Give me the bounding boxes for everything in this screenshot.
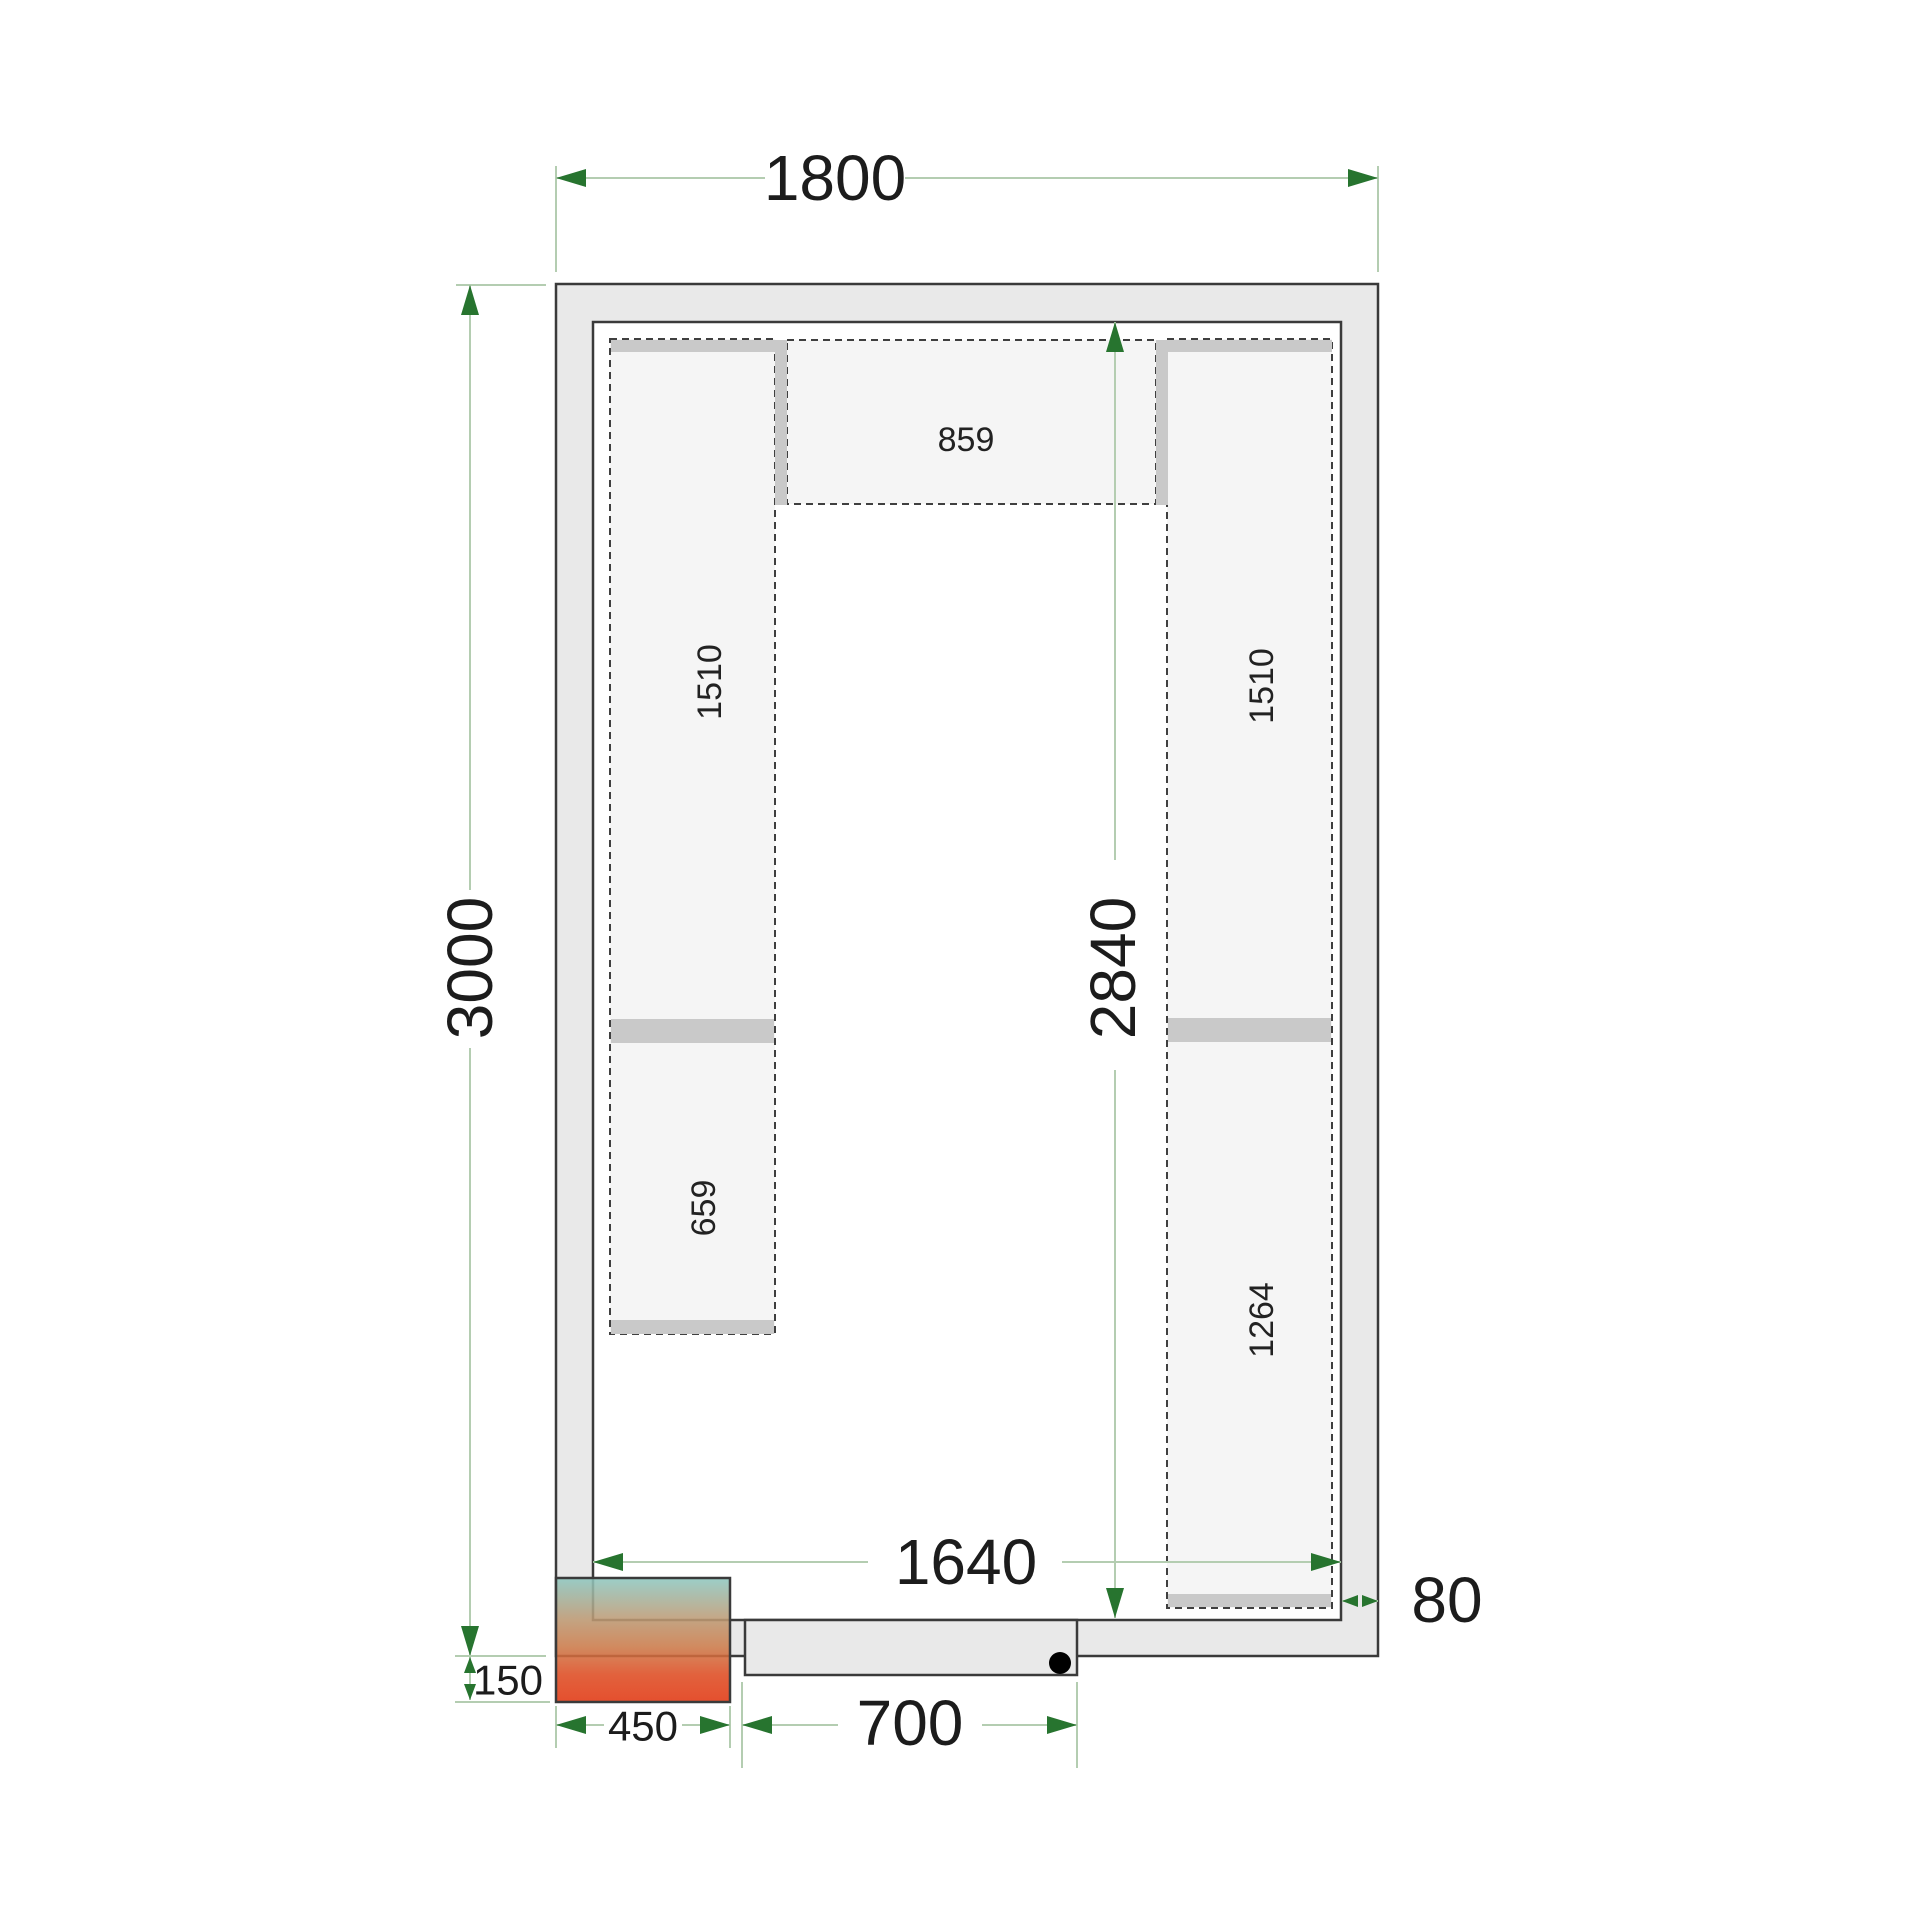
arrow-right-icon [1348, 169, 1378, 187]
cooling-unit-gradient-box [556, 1578, 730, 1702]
dim-outer-width: 1800 [556, 142, 1378, 272]
dim-inner-depth-label: 2840 [1077, 897, 1149, 1039]
shelf-left-lower-length-label: 659 [685, 1180, 723, 1237]
shelf-left-upper-length-label: 1510 [691, 644, 729, 720]
bracket-left-bottom [611, 1320, 774, 1334]
bracket-back-left-end [775, 340, 787, 505]
dim-unit-width: 450 [556, 1703, 730, 1750]
cooling-unit [556, 1578, 730, 1702]
bracket-left-divider [611, 1019, 774, 1043]
bracket-right-bottom [1168, 1594, 1331, 1607]
dim-inner-width-label: 1640 [895, 1526, 1037, 1598]
dim-door-width: 700 [742, 1682, 1077, 1768]
arrow-down-icon [461, 1626, 479, 1656]
arrow-left-icon [742, 1716, 772, 1734]
arrow-right-icon [1047, 1716, 1077, 1734]
dim-door-width-label: 700 [857, 1687, 964, 1759]
arrow-left-icon [556, 1716, 586, 1734]
shelf-right-column [1167, 339, 1332, 1608]
dim-unit-protrusion: 150 [455, 1656, 550, 1704]
shelf-right-upper-length-label: 1510 [1243, 648, 1281, 724]
door-panel [745, 1620, 1077, 1675]
arrow-right-icon [700, 1716, 730, 1734]
dim-outer-width-label: 1800 [764, 142, 906, 214]
shelf-right-lower-length-label: 1264 [1243, 1282, 1281, 1358]
bracket-back-right-end [1156, 340, 1168, 505]
arrow-left-icon [556, 169, 586, 187]
dim-unit-width-label: 450 [608, 1703, 678, 1750]
dim-unit-protrusion-label: 150 [473, 1657, 543, 1704]
dim-wall-thickness-label: 80 [1411, 1564, 1482, 1636]
arrow-up-icon [461, 285, 479, 315]
floor-plan-canvas: 859 1510 659 1510 1264 1800 3000 [0, 0, 1920, 1920]
door-lock-dot-icon [1049, 1652, 1071, 1674]
shelf-back-length-label: 859 [938, 421, 995, 459]
floor-plan-drawing: 859 1510 659 1510 1264 1800 3000 [0, 0, 1920, 1920]
bracket-left-top [611, 340, 787, 352]
bracket-right-top [1156, 340, 1332, 352]
bracket-right-divider [1168, 1018, 1331, 1042]
dim-outer-depth: 3000 [434, 285, 546, 1656]
door [745, 1620, 1077, 1675]
dim-outer-depth-label: 3000 [434, 897, 506, 1039]
